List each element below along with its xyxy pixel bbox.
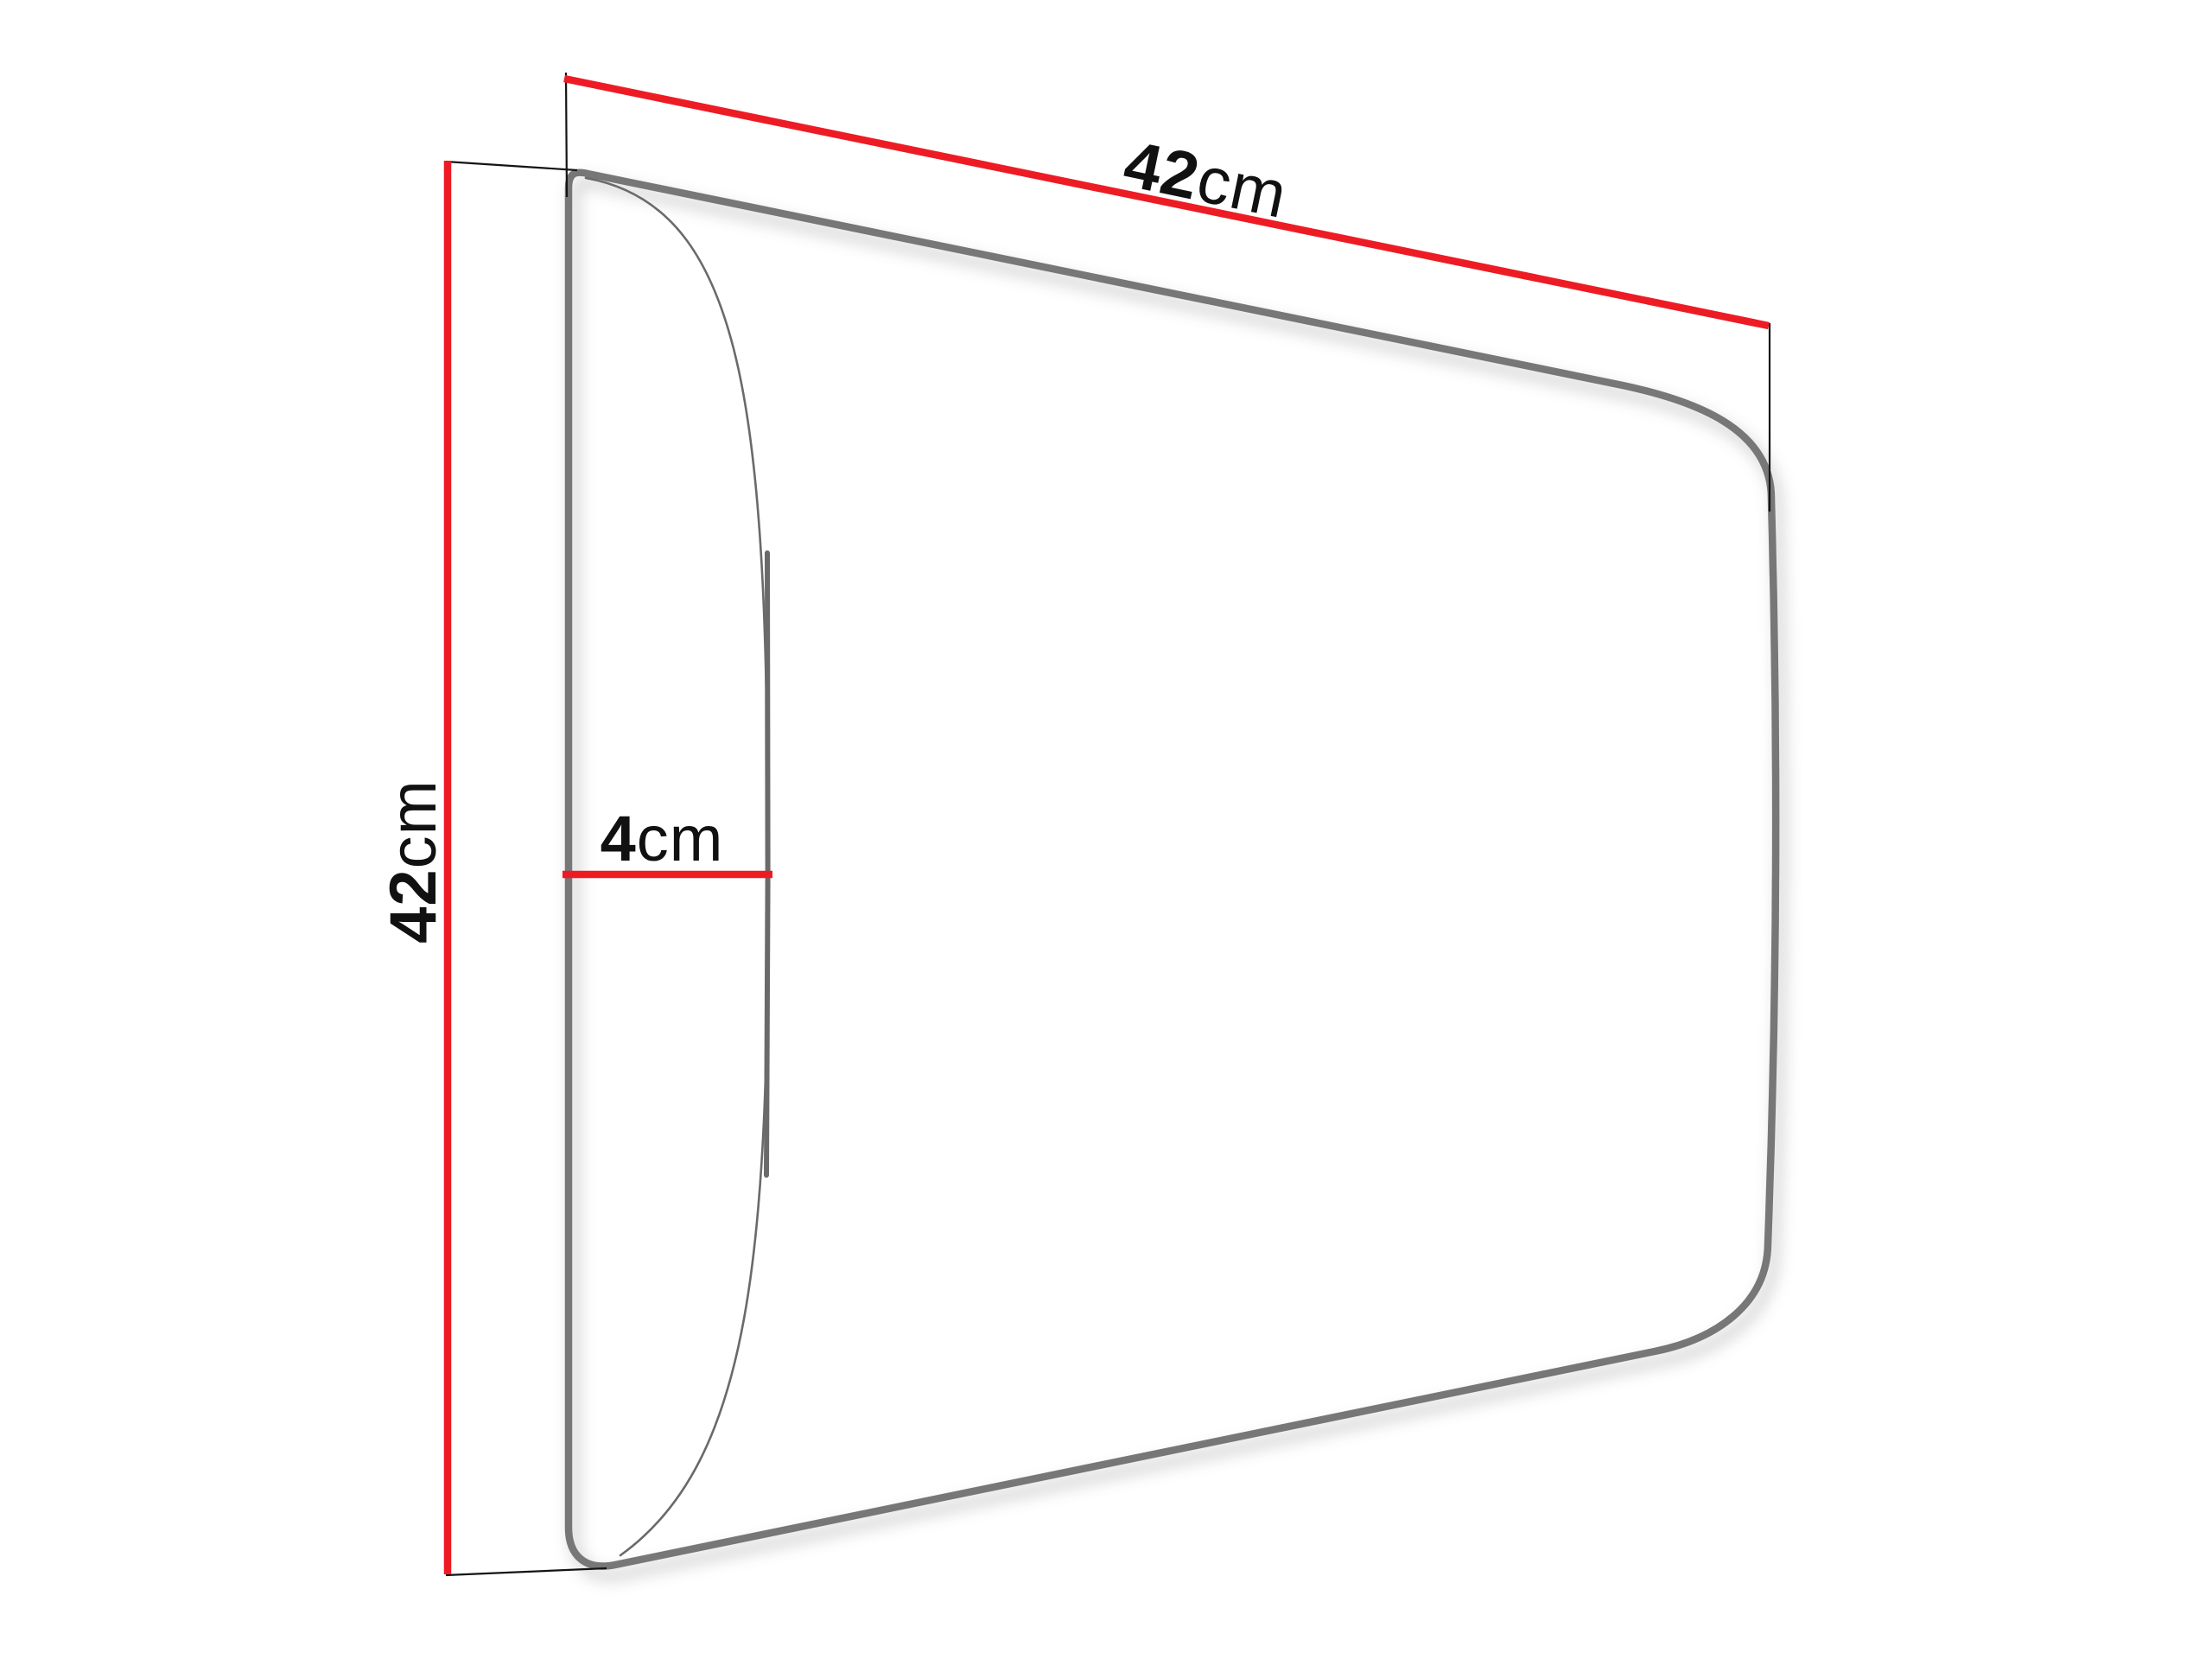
panel-dimension-diagram: 42cm 42cm 4cm [0, 0, 2212, 1659]
width-value: 42 [1118, 127, 1206, 214]
width-dimension-label: 42cm [1118, 127, 1294, 232]
panel-shape [569, 173, 1776, 1567]
extension-line-top-left-horizontal [446, 162, 577, 170]
height-value: 42 [377, 868, 450, 944]
depth-dimension-label: 4cm [601, 803, 724, 874]
width-unit: cm [1191, 143, 1294, 232]
cushion-bulge-curve-thick-mid [766, 553, 768, 1175]
height-unit: cm [377, 779, 450, 868]
depth-value: 4 [601, 803, 637, 874]
extension-line-top-left-vertical [566, 73, 567, 197]
extension-line-bottom-left-horizontal [446, 1568, 607, 1575]
height-dimension-label: 42cm [377, 779, 450, 944]
panel-outline [569, 173, 1776, 1567]
dimension-diagram-canvas: 42cm 42cm 4cm [0, 0, 2212, 1659]
depth-unit: cm [637, 803, 724, 874]
